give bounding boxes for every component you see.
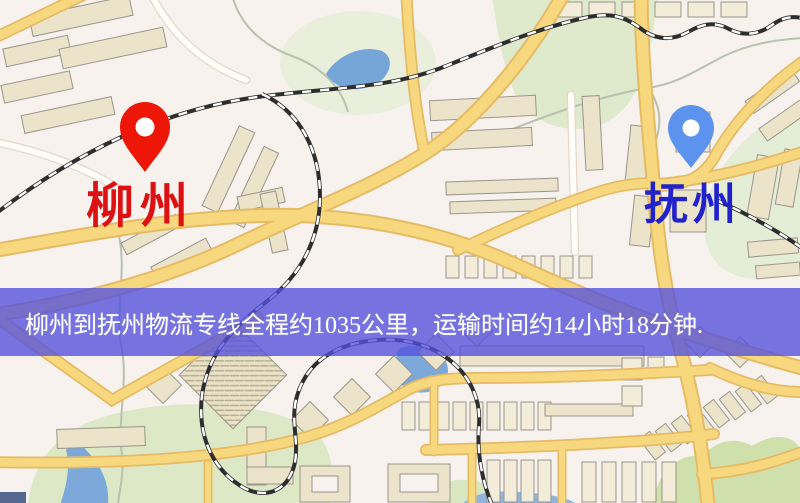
- map-canvas: 柳州 抚州: [0, 0, 800, 503]
- origin-pin-hole: [136, 118, 155, 137]
- route-info-text: 柳州到抚州物流专线全程约1035公里，运输时间约14小时18分钟.: [25, 305, 703, 340]
- route-info-banner: 柳州到抚州物流专线全程约1035公里，运输时间约14小时18分钟.: [0, 288, 800, 356]
- destination-label: 抚州: [644, 180, 740, 229]
- logistics-route-map-image: 柳州 抚州 柳州到抚州物流专线全程约1035公里，运输时间约14小时18分钟.: [0, 0, 800, 503]
- origin-label: 柳州: [86, 180, 194, 233]
- destination-pin-hole: [683, 120, 700, 137]
